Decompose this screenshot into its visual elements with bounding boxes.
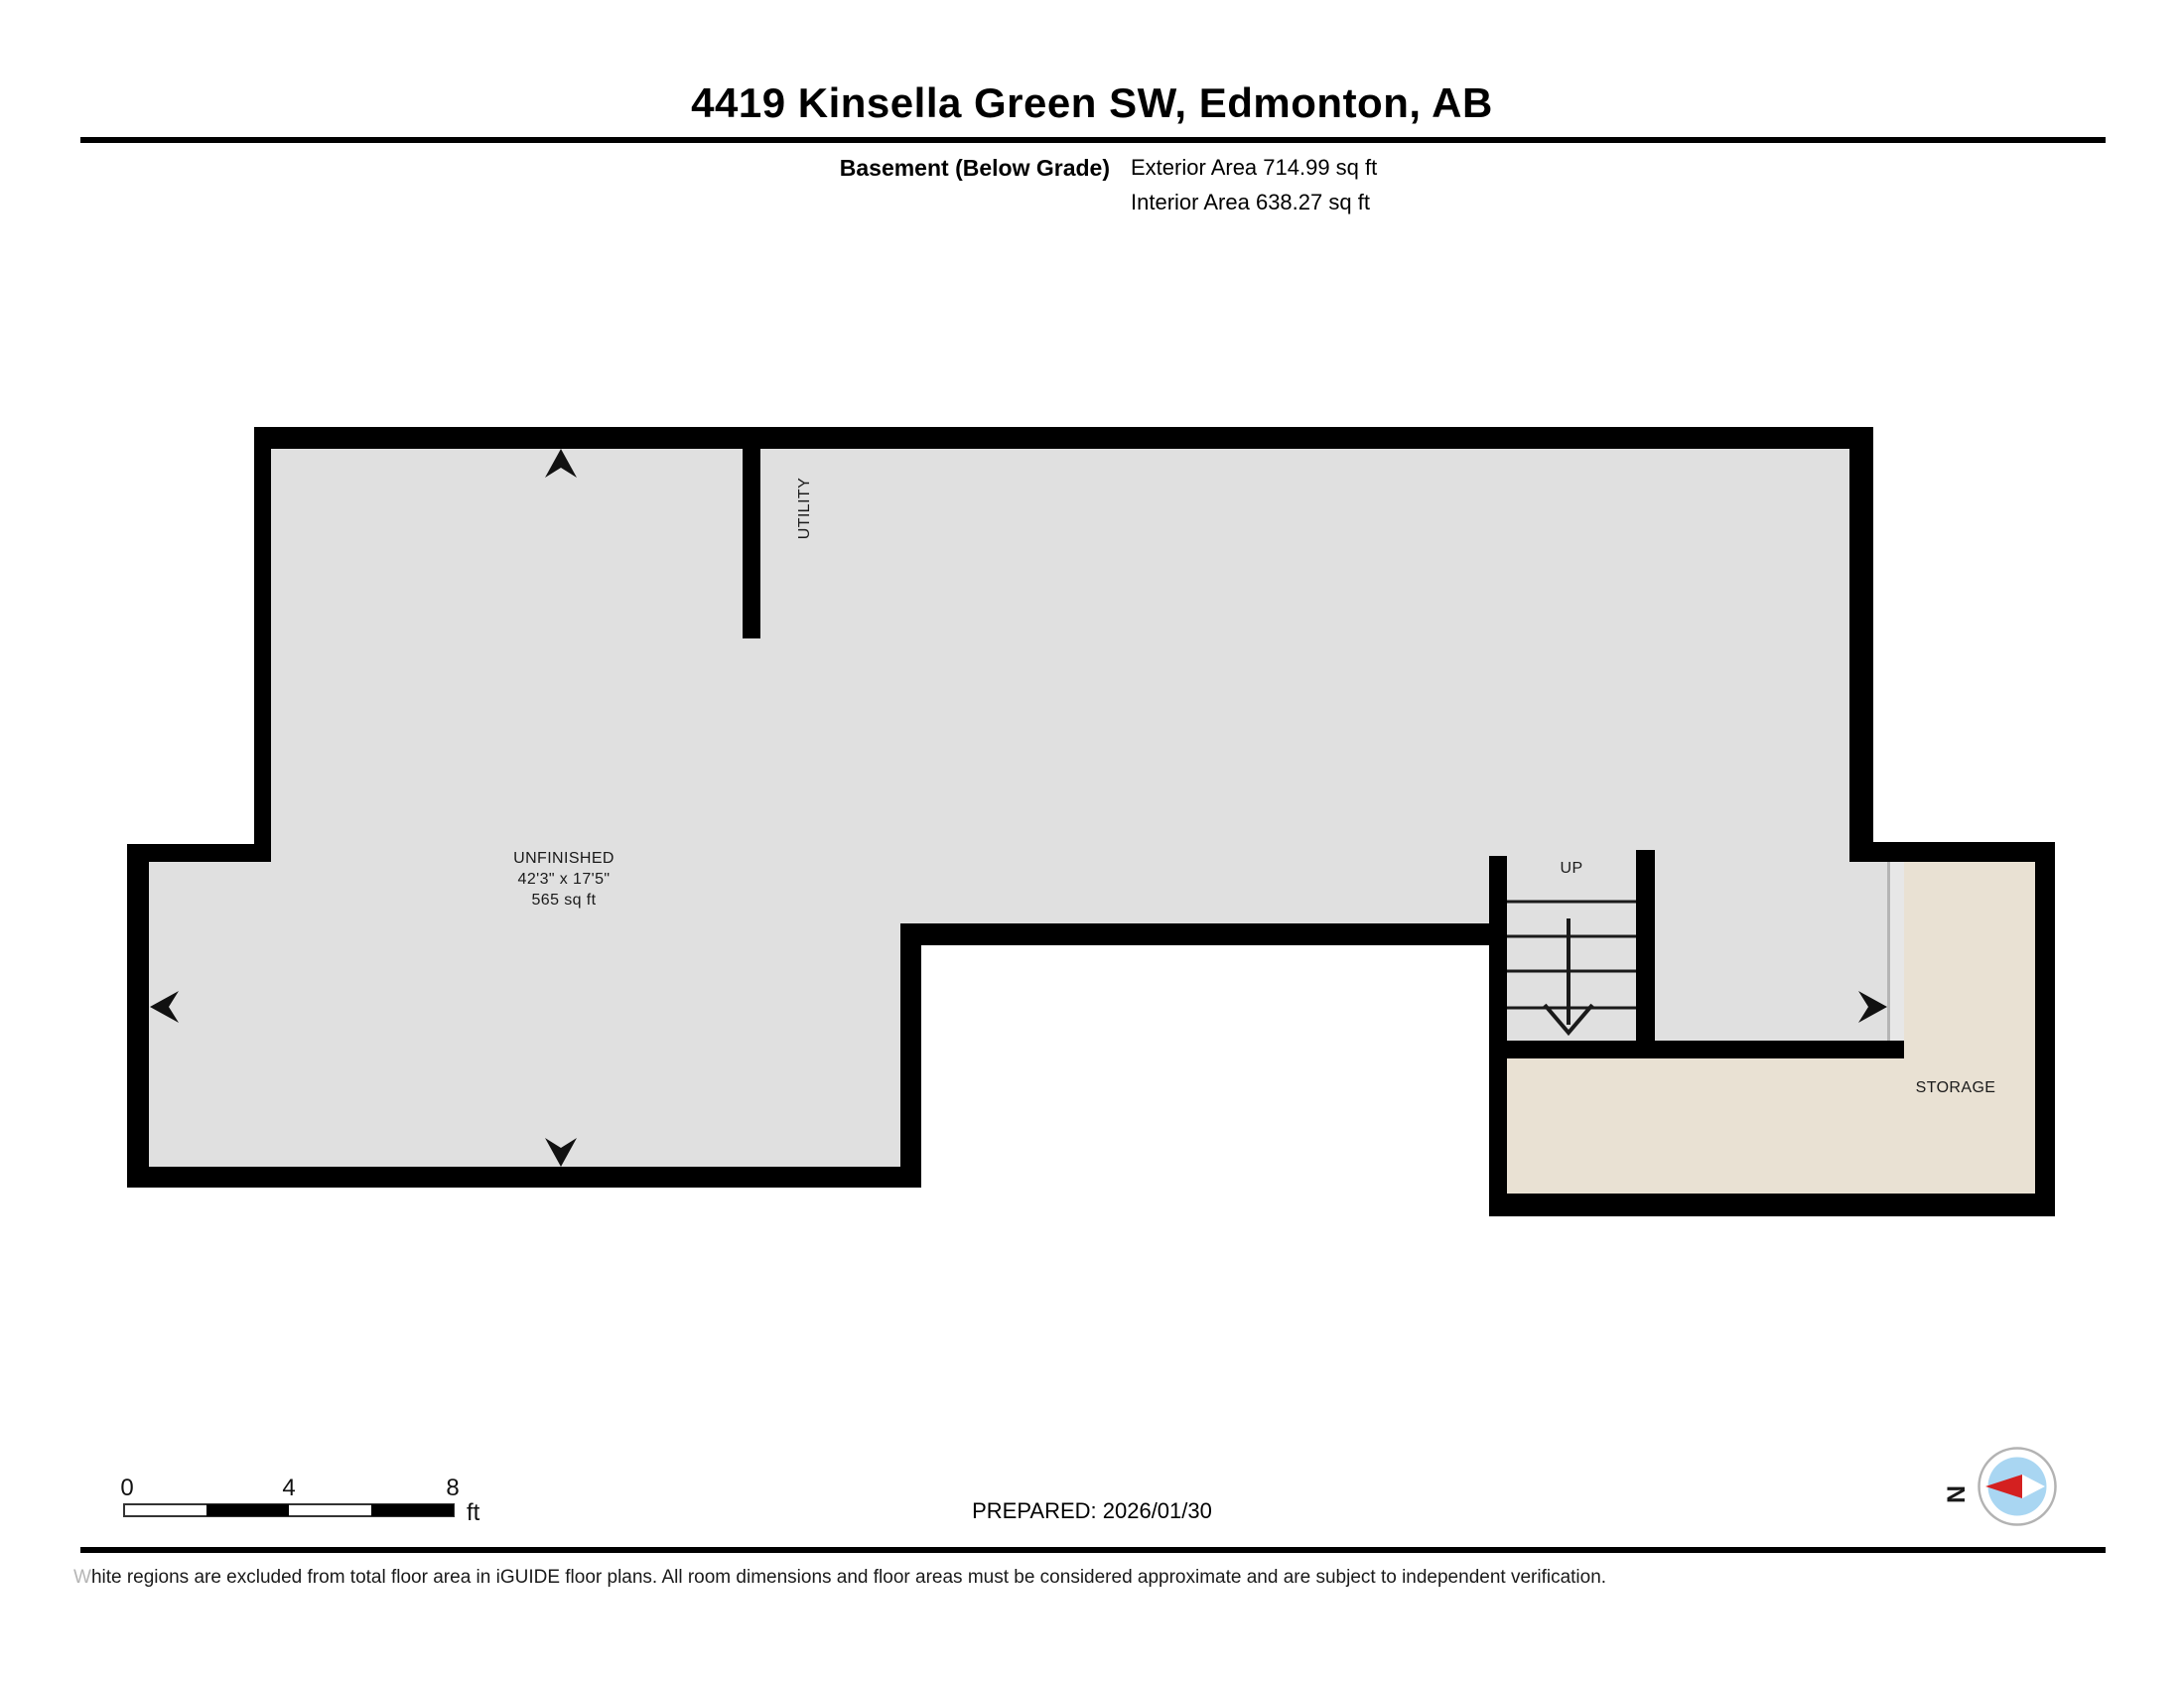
prepared-date: PREPARED: 2026/01/30 bbox=[0, 1498, 2184, 1524]
wall-storage-top bbox=[1871, 842, 2055, 862]
unfinished-room-area: 565 sq ft bbox=[532, 892, 597, 909]
wall-below-stairs bbox=[1507, 1041, 1904, 1058]
wall-stairs-left bbox=[1489, 856, 1507, 1216]
disclaimer-first-letter: W bbox=[73, 1567, 91, 1588]
wall-bottom-left bbox=[127, 1167, 921, 1188]
storage-room-name: STORAGE bbox=[1916, 1079, 1996, 1096]
wall-left-lower bbox=[127, 844, 149, 1188]
utility-room-name: UTILITY bbox=[796, 478, 813, 539]
wall-utility-partition bbox=[743, 449, 760, 638]
wall-left-upper bbox=[254, 427, 271, 862]
stairs-up-label: UP bbox=[1560, 860, 1582, 877]
storage-doorway-edge bbox=[1887, 862, 1890, 1041]
wall-notch-vertical bbox=[900, 923, 921, 1188]
wall-storage-bottom bbox=[1489, 1194, 2055, 1216]
floor-plan-page: 4419 Kinsella Green SW, Edmonton, AB Bas… bbox=[0, 0, 2184, 1688]
scale-tick-8: 8 bbox=[446, 1475, 459, 1501]
wall-notch-horizontal bbox=[900, 923, 1507, 945]
wall-stairs-right bbox=[1636, 850, 1655, 1041]
disclaimer-text: White regions are excluded from total fl… bbox=[73, 1566, 2118, 1590]
wall-right-main bbox=[1849, 427, 1873, 862]
wall-storage-right bbox=[2035, 842, 2055, 1216]
scale-tick-4: 4 bbox=[282, 1475, 295, 1501]
unfinished-room-name: UNFINISHED bbox=[513, 850, 614, 867]
wall-top bbox=[254, 427, 1873, 449]
disclaimer-body: hite regions are excluded from total flo… bbox=[91, 1567, 1606, 1588]
floor-plan-drawing: UNFINISHED 42'3" x 17'5" 565 sq ft UTILI… bbox=[0, 0, 2184, 1688]
footer-divider bbox=[80, 1547, 2106, 1553]
scale-tick-0: 0 bbox=[120, 1475, 133, 1501]
unfinished-room-dimensions: 42'3" x 17'5" bbox=[518, 871, 611, 888]
